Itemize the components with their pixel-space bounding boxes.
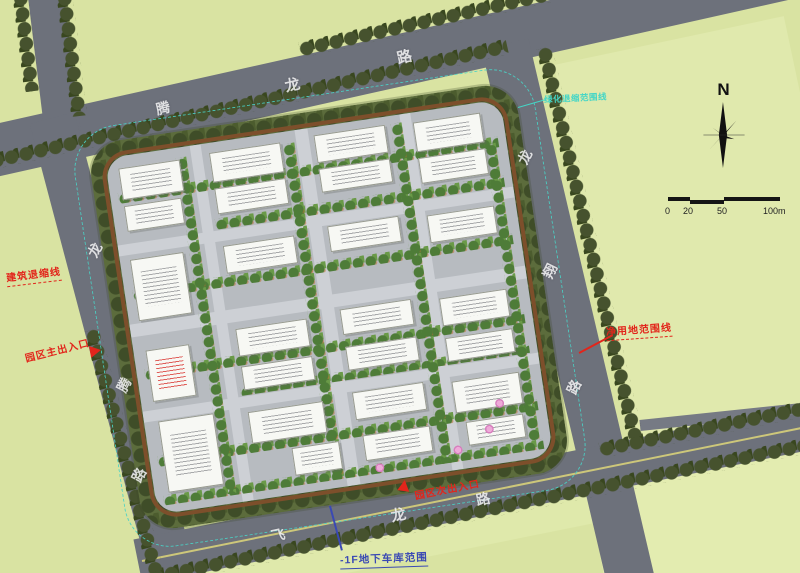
building-text	[457, 335, 503, 355]
featured-building	[145, 344, 196, 402]
building-text	[222, 151, 272, 175]
building-text	[261, 410, 313, 435]
building	[124, 198, 185, 232]
road-label-char: 龙	[284, 77, 302, 95]
building	[130, 252, 193, 321]
building-text	[301, 448, 334, 468]
building-text	[248, 326, 297, 348]
building-text	[236, 243, 285, 265]
building-text	[331, 166, 380, 186]
building-text	[326, 133, 375, 155]
building	[158, 413, 224, 492]
compass-rose-icon	[701, 100, 747, 170]
site-ground	[105, 99, 554, 514]
building-text	[130, 168, 173, 192]
building-text	[375, 433, 422, 454]
road-label-char: 路	[396, 49, 414, 67]
building-setback-label: 建筑退缩线	[5, 263, 62, 288]
site-tree-ring	[86, 81, 571, 533]
scale-tick: 0	[665, 206, 670, 216]
scale-bar-segments	[668, 197, 788, 205]
building-text	[358, 344, 407, 364]
building-text	[340, 223, 389, 244]
building-text	[141, 266, 181, 307]
road-label-char: 路	[475, 491, 492, 508]
building-text	[439, 213, 486, 235]
scale-tick: 20	[683, 206, 693, 216]
road-label-char: 龙	[390, 507, 408, 525]
building-text	[227, 186, 276, 207]
building-text	[365, 390, 414, 412]
building-text	[254, 363, 303, 383]
scale-tick: 50	[717, 206, 727, 216]
building-text	[352, 306, 401, 327]
building-text	[430, 156, 477, 177]
road-label-char: 飞	[270, 527, 287, 544]
main-entrance-label: 园区主出入口	[23, 334, 91, 365]
building-text	[155, 356, 188, 390]
road-label-char: 腾	[155, 100, 172, 117]
map-canvas: 腾 龙 路 龙 腾 路 龙 翔 路 飞 龙 路 建筑退缩线 园区主出入口 净用地…	[0, 0, 800, 573]
scale-bar: 0 20 50 100m	[668, 197, 788, 221]
secondary-entrance-arrow-icon	[397, 479, 410, 492]
underground-garage-label: -1F地下车库范围	[340, 549, 428, 569]
building-text	[170, 430, 213, 477]
north-label: N	[694, 80, 754, 100]
compass: N	[694, 80, 754, 175]
main-entrance-arrow-icon	[89, 344, 102, 358]
building-text	[451, 296, 498, 318]
building-text	[135, 205, 175, 225]
scale-tick: 100m	[763, 206, 786, 216]
building-text	[476, 420, 516, 439]
building-text	[425, 121, 472, 144]
